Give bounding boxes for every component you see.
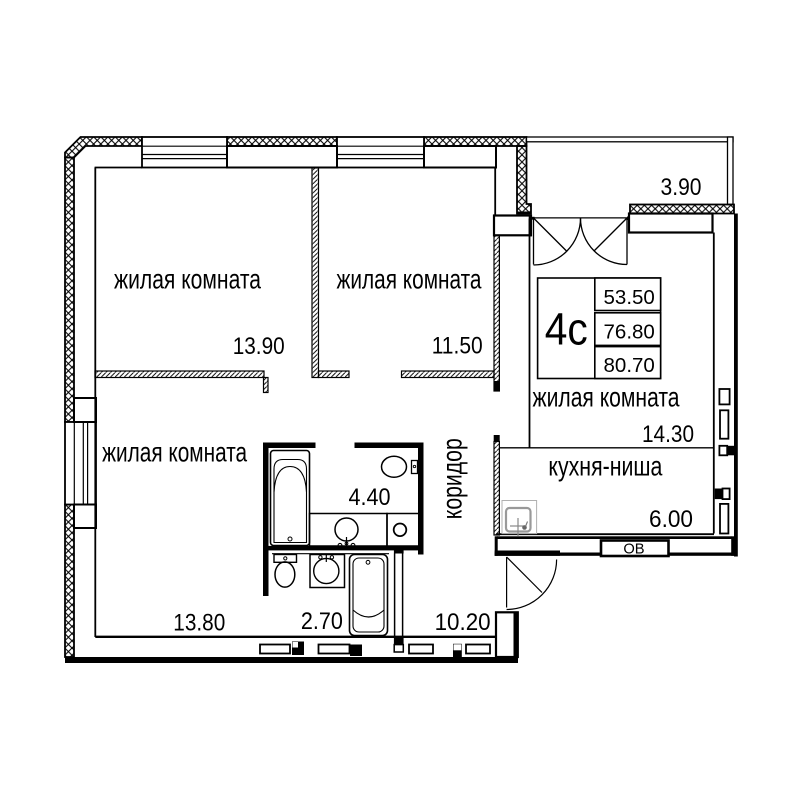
svg-text:13.90: 13.90 bbox=[233, 333, 285, 360]
svg-text:ОВ: ОВ bbox=[623, 542, 644, 558]
svg-text:коридор: коридор bbox=[437, 438, 468, 519]
svg-text:жилая комната: жилая комната bbox=[114, 264, 261, 295]
svg-text:жилая комната: жилая комната bbox=[337, 264, 482, 295]
svg-text:6.00: 6.00 bbox=[649, 506, 693, 533]
svg-text:жилая комната: жилая комната bbox=[102, 436, 247, 467]
svg-text:3.90: 3.90 bbox=[661, 174, 702, 201]
svg-text:13.80: 13.80 bbox=[173, 610, 225, 637]
svg-text:11.50: 11.50 bbox=[432, 332, 483, 359]
svg-text:2.70: 2.70 bbox=[301, 608, 343, 635]
svg-text:76.80: 76.80 bbox=[604, 321, 655, 344]
svg-text:14.30: 14.30 bbox=[642, 421, 694, 448]
svg-text:4.40: 4.40 bbox=[349, 484, 391, 511]
svg-text:53.50: 53.50 bbox=[604, 286, 655, 309]
svg-text:жилая комната: жилая комната bbox=[533, 381, 680, 412]
svg-text:кухня-ниша: кухня-ниша bbox=[548, 451, 662, 482]
svg-text:80.70: 80.70 bbox=[604, 354, 655, 377]
svg-text:4с: 4с bbox=[545, 304, 588, 355]
svg-text:10.20: 10.20 bbox=[435, 609, 491, 636]
